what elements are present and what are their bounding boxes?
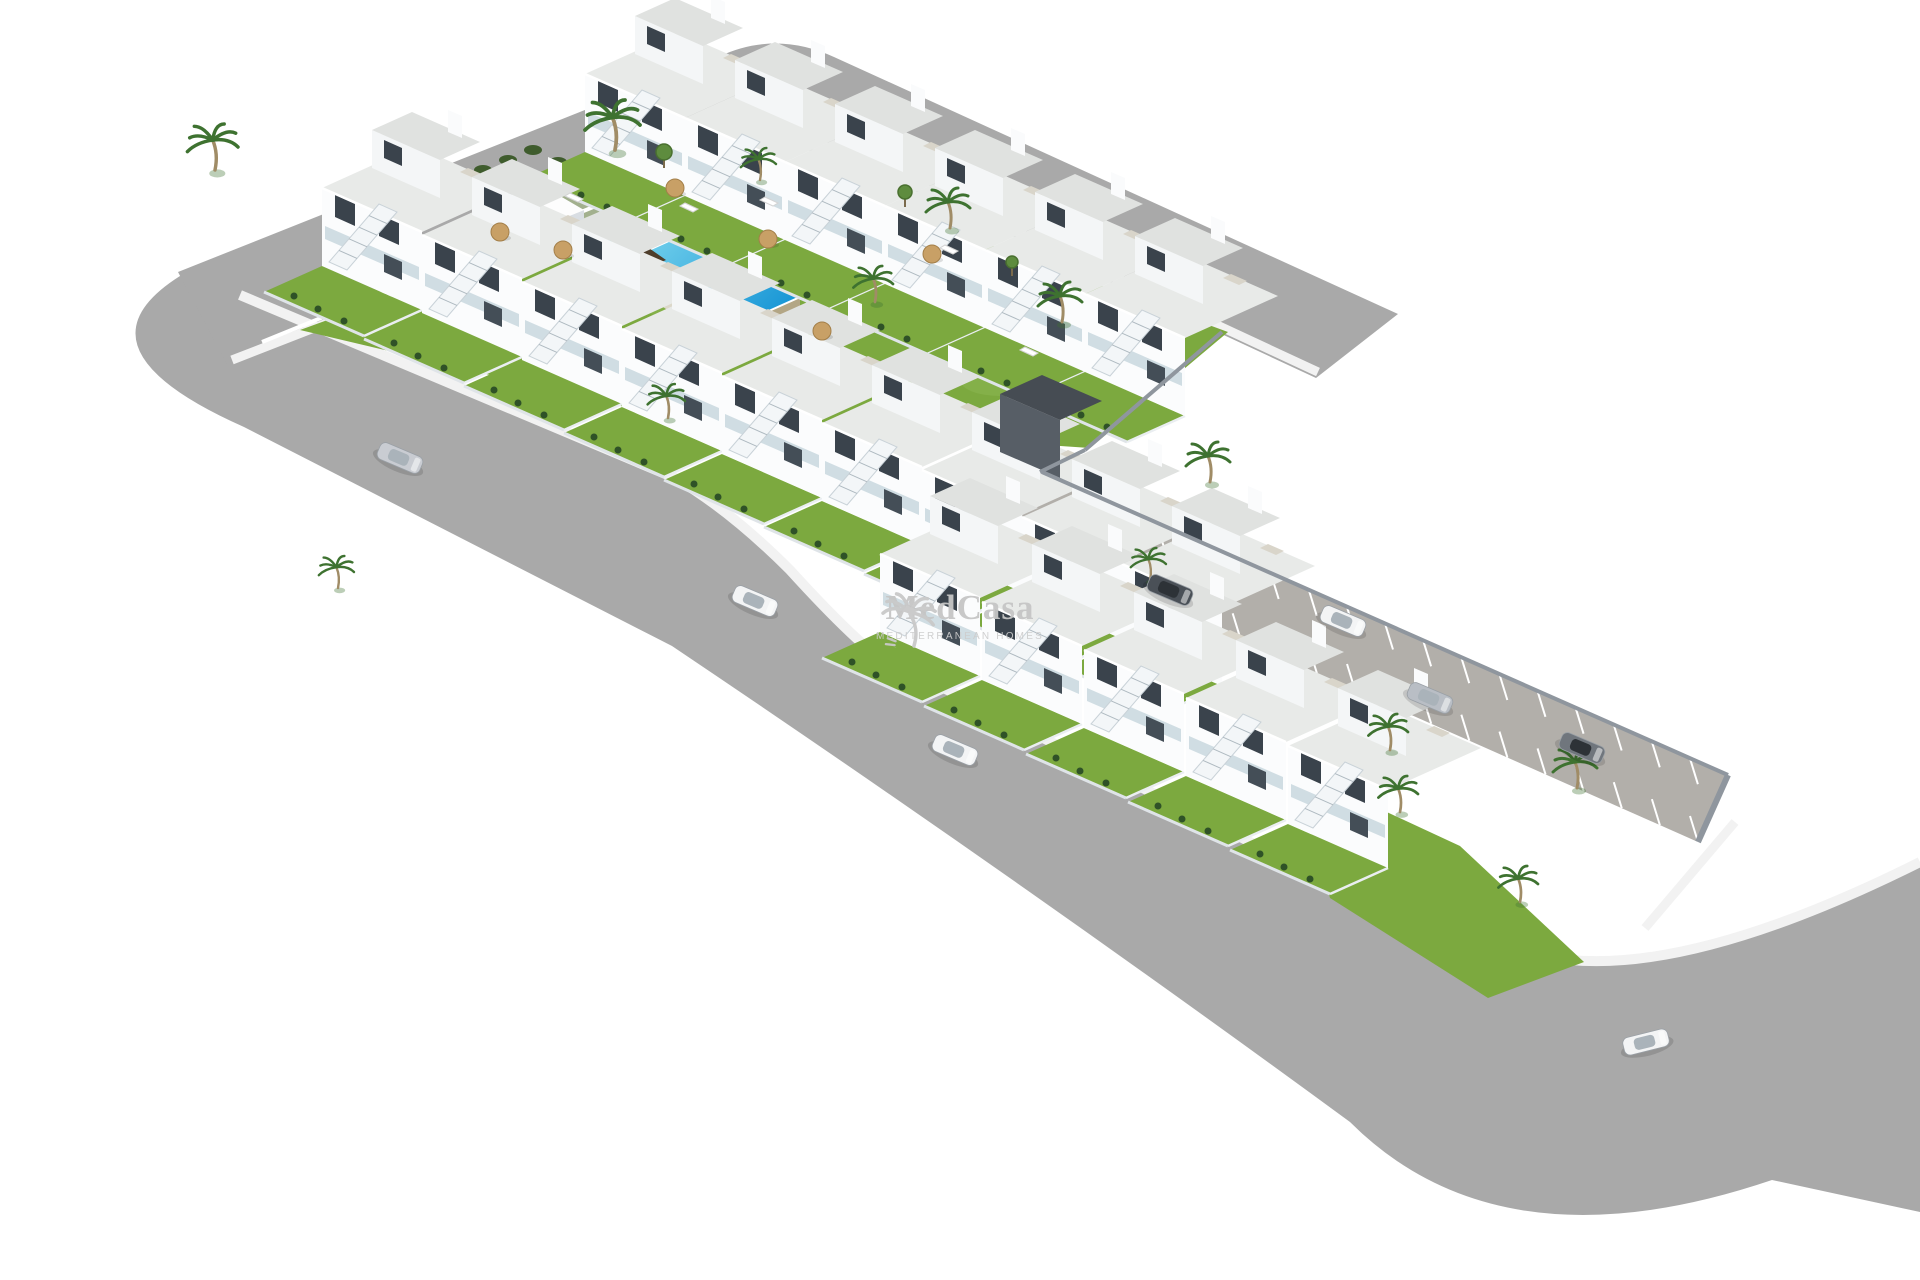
- palm-tree: [187, 124, 238, 177]
- palm-tree: [1186, 442, 1230, 489]
- site-plan-render: MedCasa MEDITERRANEAN HOMES: [0, 0, 1920, 1280]
- palm-tree: [319, 556, 354, 593]
- development-aerial-scene: [0, 0, 1920, 1280]
